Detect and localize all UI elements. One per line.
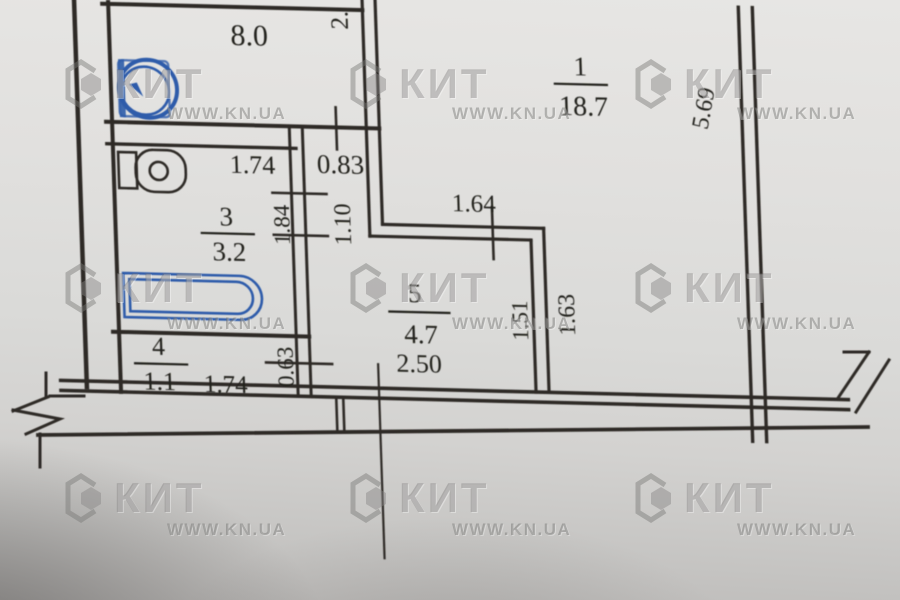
- room3-fraction-line: [202, 233, 254, 234]
- dim-hall-depth: 1.51: [506, 300, 533, 341]
- room4-area-label: 1.1: [143, 366, 176, 396]
- room5-area-label: 4.7: [404, 319, 439, 350]
- wall-kitchen-top: [102, 4, 362, 10]
- dim-niche-depth: 1.10: [330, 203, 357, 246]
- wall-bottom-connector-b: [343, 397, 344, 429]
- wall-hall-top-a: [370, 236, 531, 240]
- room1-fraction-line: [555, 84, 607, 85]
- wall-bottom-connector-a: [336, 397, 337, 429]
- wall-left-outer: [74, 0, 87, 387]
- wall-room1-left-b: [375, 0, 382, 224]
- dim-room1-inner-width: 1.64: [451, 190, 496, 218]
- wall-hall-right-b: [544, 228, 549, 392]
- dim-niche-width: 0.83: [316, 149, 364, 180]
- room5-fraction-line: [389, 312, 449, 313]
- sink-icon: [118, 59, 178, 118]
- sink-bowl-inner: [120, 66, 170, 115]
- wall-right-outer-b: [752, 8, 766, 442]
- wall-bathroom-right-b: [302, 127, 311, 397]
- wall-room1-left-a: [362, 0, 370, 236]
- scanned-floor-plan-page: 8.0 2. 0.83 1.10 1.74 1.84 3 3.2 1 18.7 …: [0, 0, 900, 600]
- wall-bottom-inner-lower: [61, 390, 849, 409]
- wall-bottom-outer: [38, 427, 868, 435]
- dim-room4-width: 1.74: [203, 371, 248, 399]
- dim-kitchen-width-partial: 2.: [326, 10, 354, 29]
- wall-right-outer-a: [738, 7, 752, 441]
- toilet-drain: [149, 162, 168, 180]
- dim-hall-width: 2.50: [396, 349, 442, 379]
- wall-bathroom-top: [107, 144, 296, 149]
- room5-number-label: 5: [408, 278, 423, 308]
- room3-number-label: 3: [219, 201, 234, 231]
- dim-bathroom-depth: 1.84: [268, 204, 295, 245]
- dimension-tick: [336, 107, 337, 149]
- floor-plan-drawing: 8.0 2. 0.83 1.10 1.74 1.84 3 3.2 1 18.7 …: [0, 0, 900, 600]
- wall-room3-room4-divider: [113, 332, 309, 337]
- room4-fraction-line: [135, 363, 187, 364]
- room1-area-label: 18.7: [559, 91, 609, 123]
- room4-number-label: 4: [152, 332, 166, 361]
- room3-area-label: 3.2: [212, 236, 247, 267]
- wall-bottom-inner-upper: [61, 380, 849, 399]
- bathtub-inner: [129, 279, 253, 314]
- dim-room4-depth: 0.63: [272, 346, 299, 387]
- wall-kitchen-bottom: [106, 122, 379, 129]
- wall-hall-top-b: [382, 224, 543, 228]
- dim-bathroom-width: 1.74: [229, 150, 275, 180]
- dim-room1-side-depth: 5.69: [688, 85, 721, 132]
- sink-drain: [129, 82, 143, 96]
- dimension-tick: [272, 193, 326, 194]
- bathtub-icon: [123, 273, 263, 320]
- dim-room1-lower-depth: 1.63: [554, 294, 581, 337]
- break-mark-right: [838, 352, 889, 412]
- toilet-icon: [118, 149, 186, 193]
- room1-number-label: 1: [573, 51, 588, 81]
- kitchen-area-label: 8.0: [230, 19, 269, 53]
- dimension-extension-line: [378, 364, 384, 558]
- break-mark-left: [13, 373, 84, 467]
- toilet-bowl: [135, 149, 186, 192]
